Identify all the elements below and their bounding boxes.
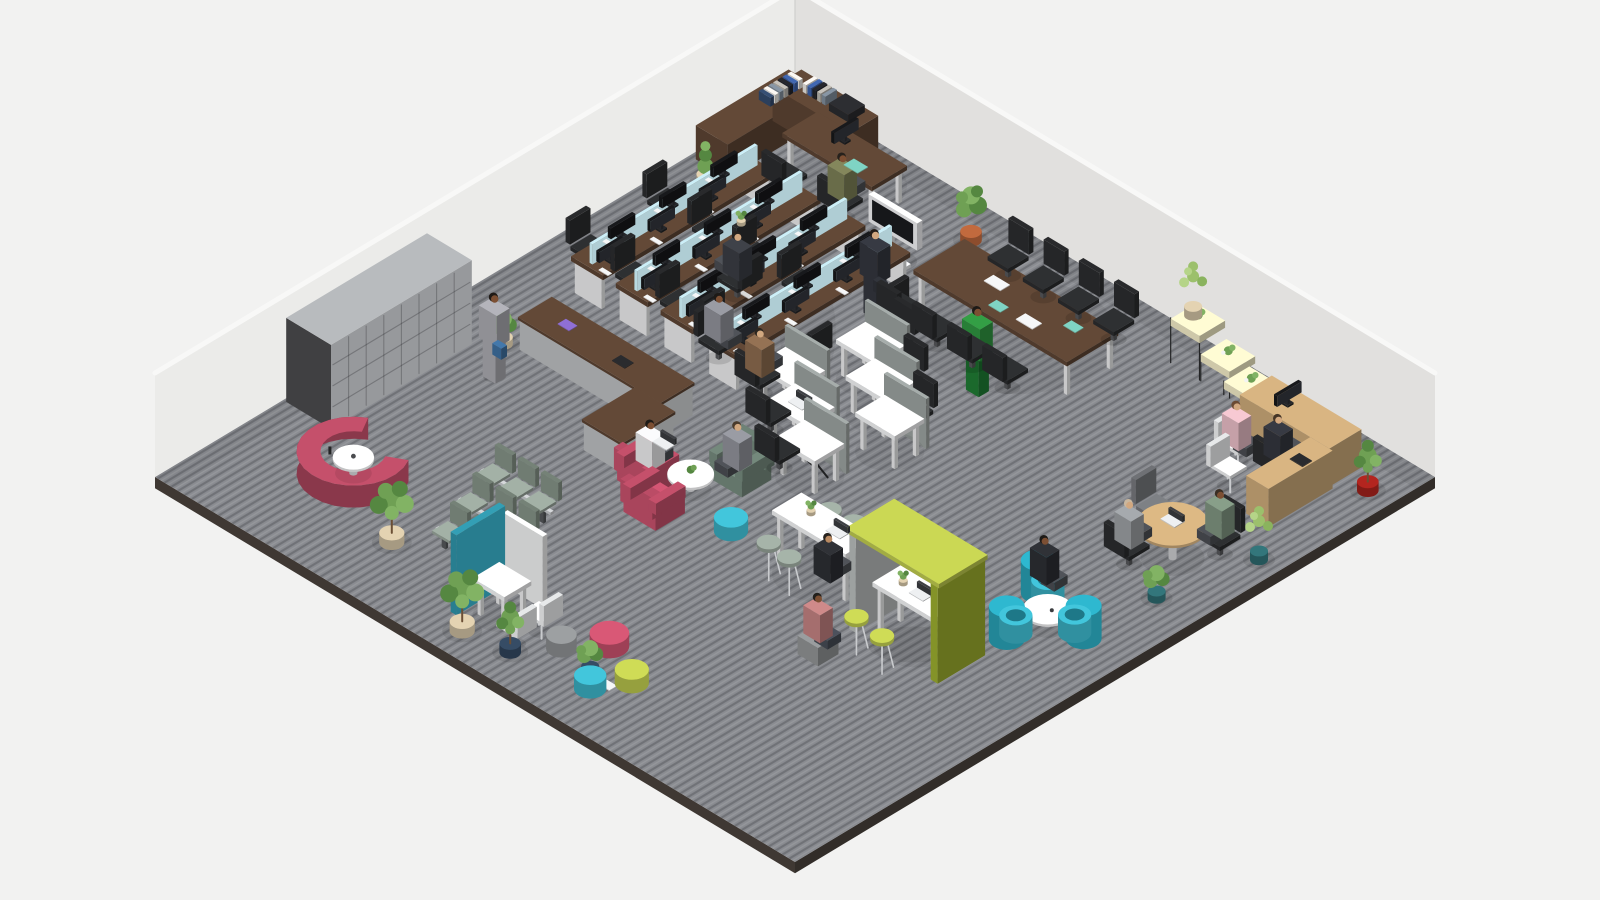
scene-canvas bbox=[0, 0, 1600, 900]
pouf-green bbox=[615, 659, 649, 693]
bench-table bbox=[333, 445, 374, 484]
pouf-teal bbox=[574, 665, 606, 698]
person-standing-gray bbox=[479, 293, 510, 384]
pouf-gray bbox=[546, 625, 577, 657]
pouf-teal-lounge bbox=[714, 507, 748, 541]
office-isometric-render bbox=[0, 0, 1600, 900]
